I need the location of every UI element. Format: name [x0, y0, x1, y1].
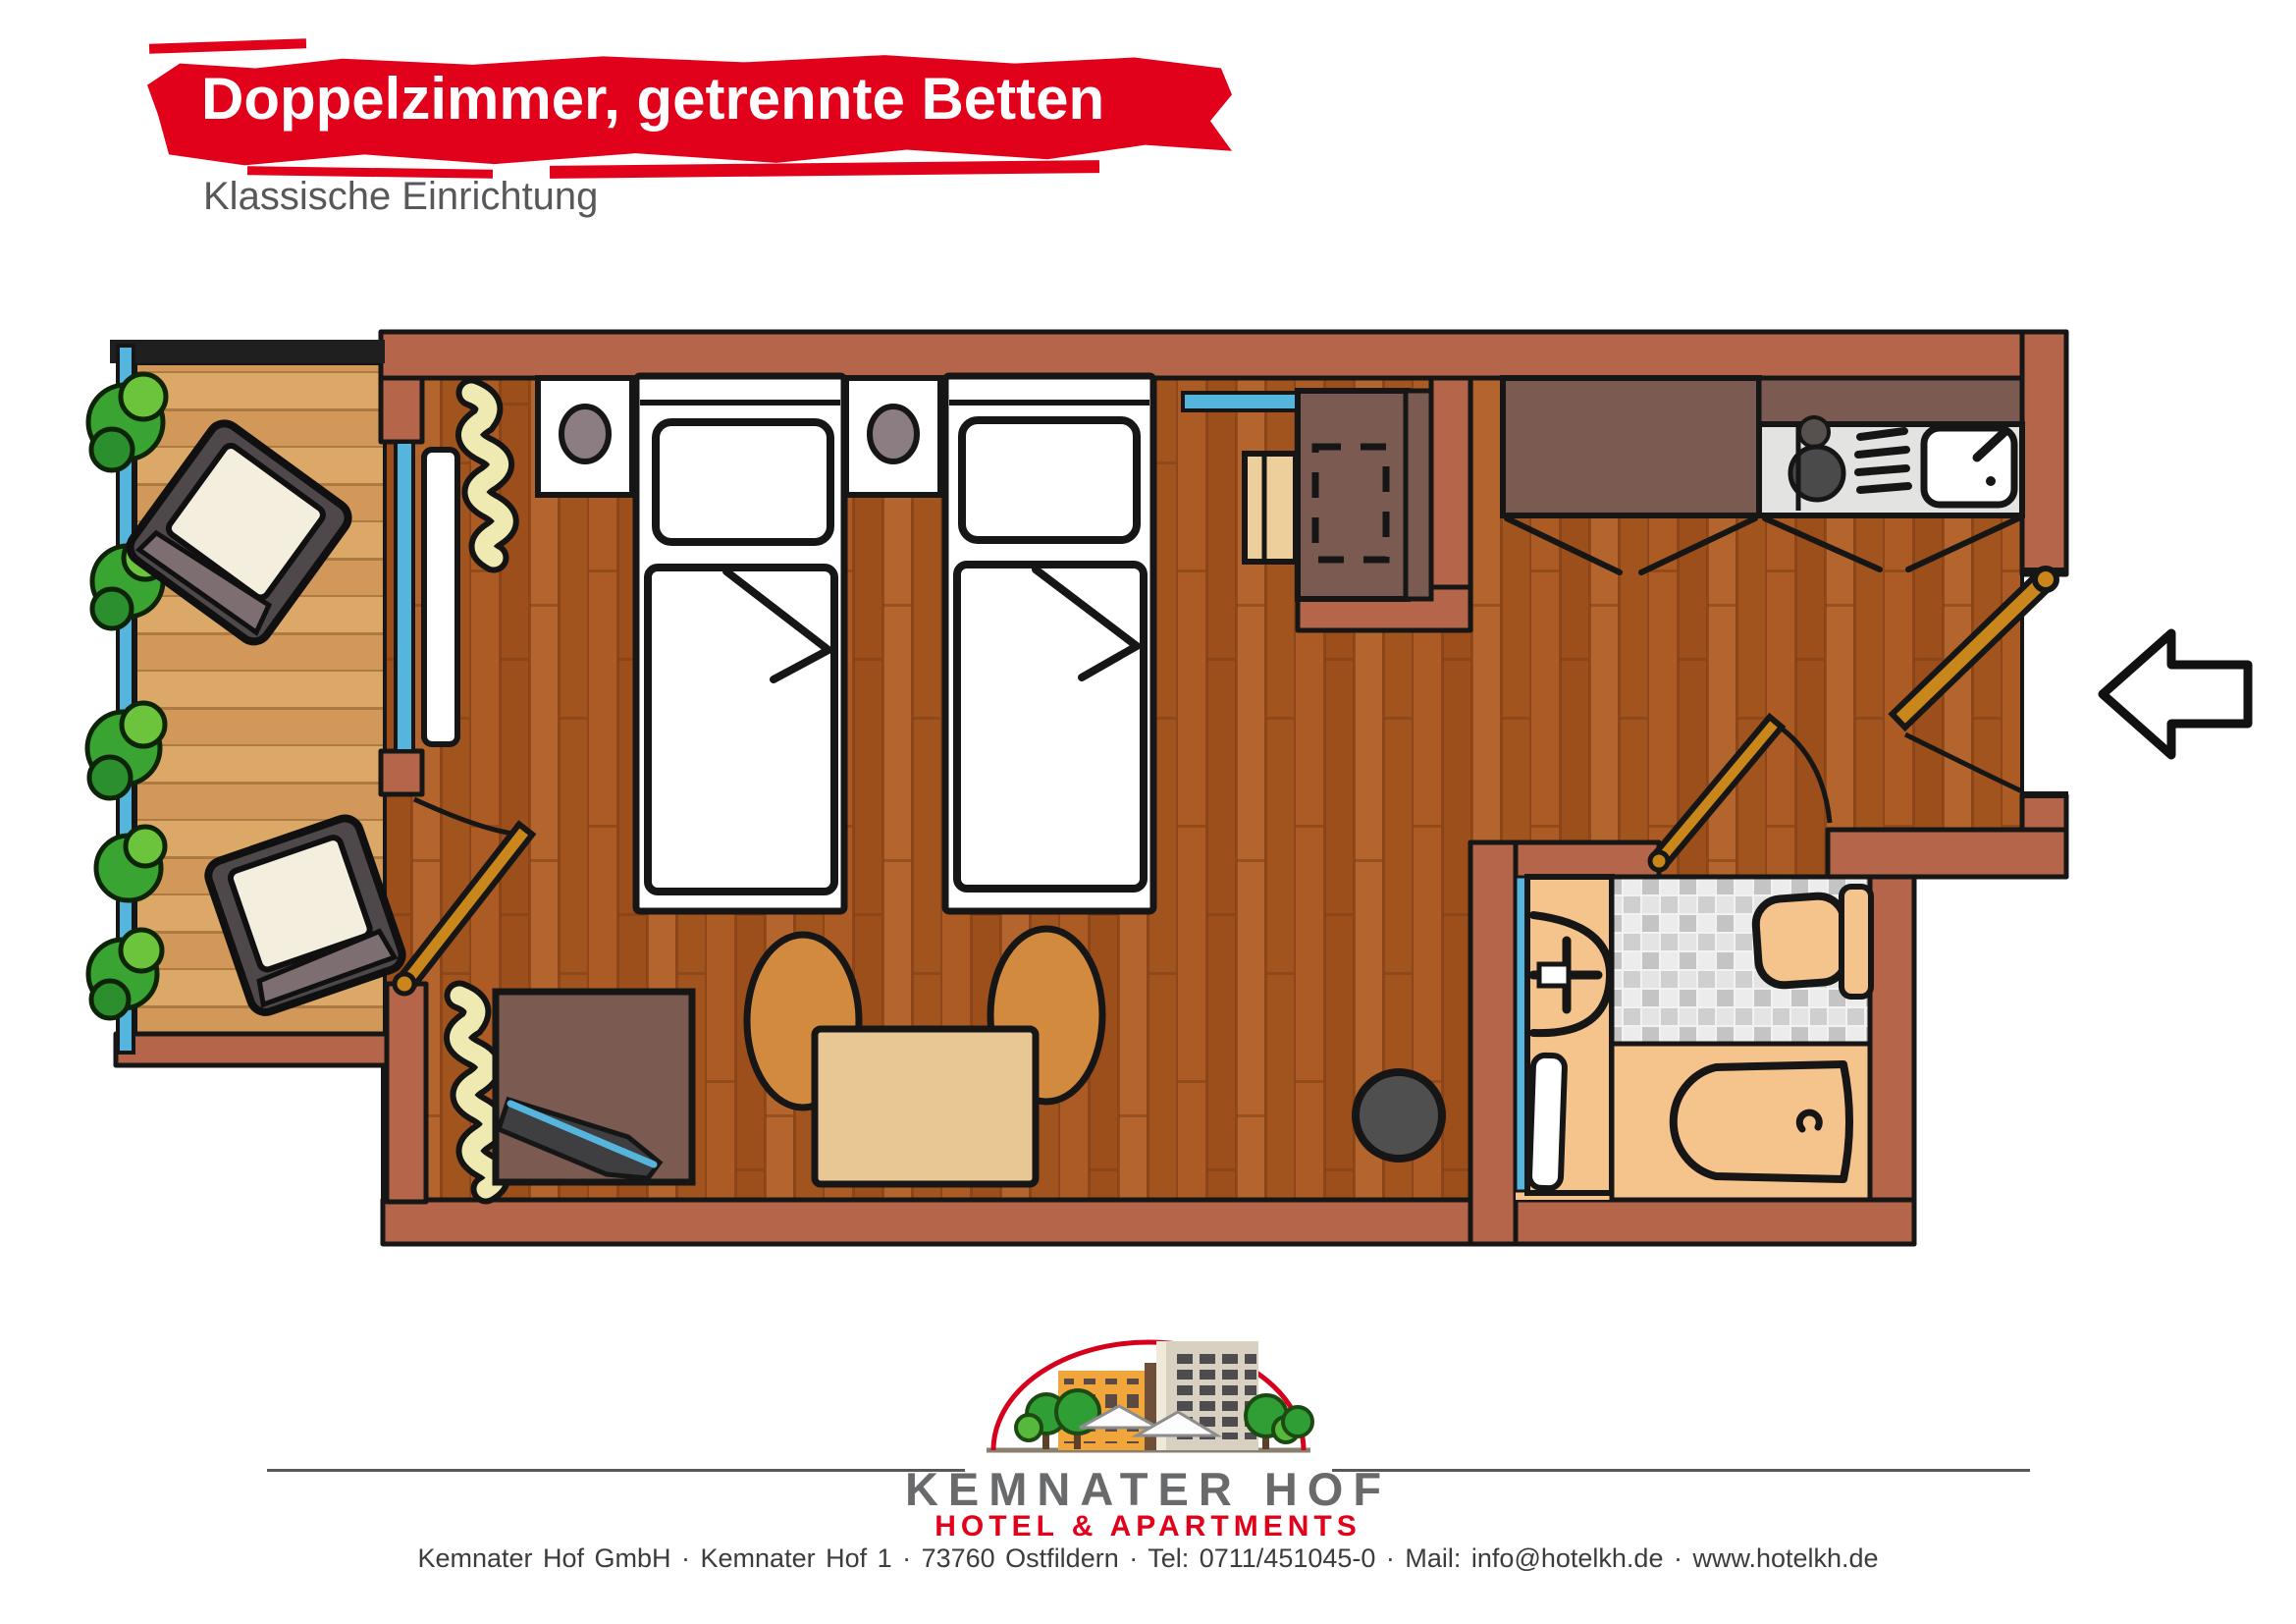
pillow — [962, 420, 1137, 540]
bathroom — [1516, 877, 1871, 1200]
wall-jog — [1828, 830, 2066, 877]
wall-balcony-top — [110, 340, 385, 363]
footer-contact-line: Kemnater Hof GmbH · Kemnater Hof 1 · 737… — [0, 1543, 2296, 1574]
desk-chair — [1245, 454, 1296, 562]
duvet — [957, 565, 1144, 889]
bed-right — [945, 376, 1153, 911]
bedside-lamp — [870, 406, 917, 461]
hotel-logo-graphic — [987, 1341, 1312, 1450]
entrance-door-hinge — [2035, 568, 2056, 590]
page-subtitle: Klassische Einrichtung — [203, 175, 598, 219]
kitchen-backsplash — [1759, 378, 2022, 424]
wall-balcony-bottom — [116, 1034, 400, 1065]
wall-window-pier — [381, 378, 422, 442]
entrance-arrow-icon — [2103, 633, 2248, 755]
hotel-logo-name: KEMNATER HOF — [0, 1462, 2296, 1516]
pillow — [656, 422, 830, 542]
wall-left-lower — [387, 984, 426, 1202]
kitchen-tall-cabinet — [1503, 378, 1759, 515]
waste-bin — [1356, 1072, 1442, 1159]
radiator — [424, 450, 457, 744]
wall-desk-pier — [1431, 378, 1470, 589]
sideboard — [496, 992, 692, 1182]
duvet — [648, 568, 834, 892]
wall-bathroom-left — [1470, 842, 1516, 1244]
window-strip — [1183, 393, 1310, 410]
balcony-door-hinge — [395, 974, 414, 994]
page-title: Doppelzimmer, getrennte Betten — [201, 65, 1183, 133]
toilet-cistern — [1842, 887, 1871, 997]
nightstand-left — [538, 378, 632, 495]
desk — [1298, 391, 1431, 599]
bathroom-door-hinge — [1650, 852, 1668, 870]
floorplan-drawing — [0, 0, 2296, 1624]
wall-door-post — [381, 751, 422, 794]
wall-bottom — [383, 1200, 1914, 1244]
toilet-bowl — [1754, 894, 1848, 987]
plant-top — [470, 393, 504, 558]
nightstand-right — [846, 378, 940, 495]
wall-top — [381, 332, 2066, 378]
flyer-page: Doppelzimmer, getrennte Betten Klassisch… — [0, 0, 2296, 1624]
towel-radiator — [1529, 1055, 1566, 1188]
hotel-logo-tagline: HOTEL & APARTMENTS — [0, 1510, 2296, 1543]
sink-drain — [1986, 476, 1996, 486]
balcony-window — [396, 442, 413, 751]
bed-left — [636, 376, 844, 911]
wall-bathroom-top — [1516, 842, 1659, 878]
dining-table — [815, 1029, 1036, 1184]
wall-right-upper — [2022, 332, 2066, 574]
bedside-lamp — [561, 406, 609, 461]
stove-burner-small — [1799, 417, 1829, 447]
bathtub — [1674, 1064, 1849, 1179]
wall-bathroom-right — [1870, 877, 1914, 1244]
